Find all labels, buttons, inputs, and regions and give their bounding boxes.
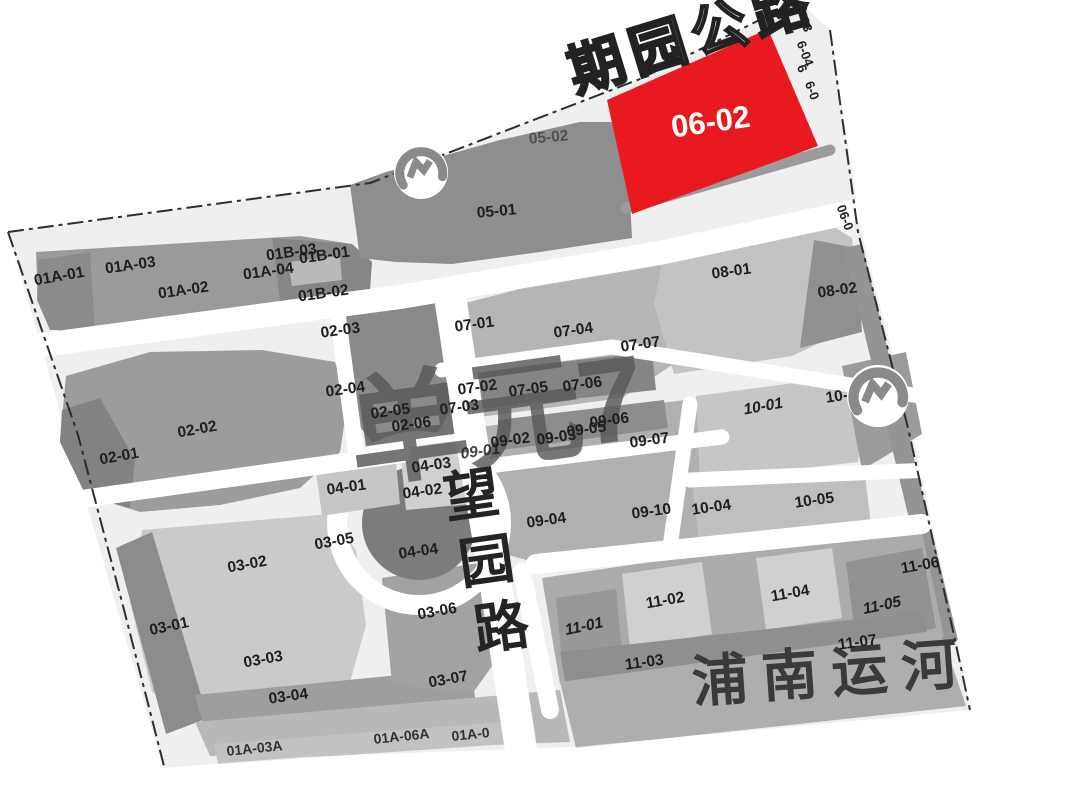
planning-map: 06-02 期园公路 单元7 望 园 路 浦南运河 01A-01 01A-03 …: [0, 0, 1080, 790]
parcel-label: 05-02: [528, 127, 569, 147]
svg-text:园: 园: [455, 527, 518, 596]
parcel-label: 05-01: [476, 201, 517, 221]
planning-map-page: 06-02 期园公路 单元7 望 园 路 浦南运河 01A-01 01A-03 …: [0, 0, 1080, 790]
svg-text:路: 路: [470, 593, 534, 662]
